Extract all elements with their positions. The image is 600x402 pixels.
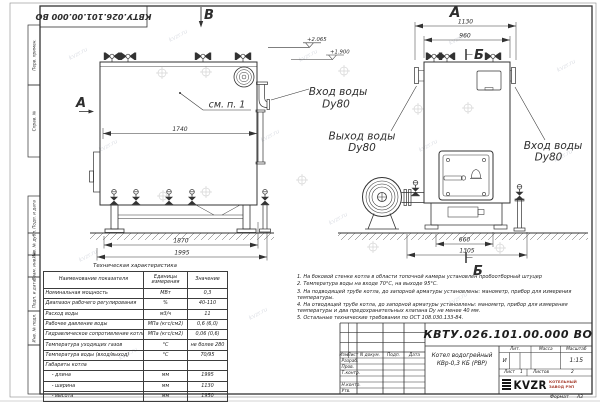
dim-1305: 1305: [459, 248, 474, 255]
row-units: [144, 361, 188, 371]
col-list: Лист: [347, 353, 358, 358]
tech-table: Наименование показателя Единицы измерени…: [43, 271, 228, 402]
front-view: [90, 62, 275, 240]
view-label-B: В: [204, 8, 214, 23]
doc-name-line1: Котел водогрейный: [432, 353, 493, 359]
row-value: 1950: [188, 391, 228, 401]
sheet-label: Лист: [504, 370, 515, 375]
doc-name-line2: КВр-0,3 КБ (РВР): [437, 361, 487, 367]
row-name: Расход воды: [44, 309, 144, 319]
sheets-num: 2: [571, 370, 574, 375]
sheet-num: 1: [520, 370, 523, 375]
watermark-text: kvzr.ru: [248, 306, 269, 322]
margin-label: Перв. примен.: [32, 39, 37, 70]
table-row: Температура уходящих газов°Сне более 280: [44, 340, 228, 350]
kvzr-logo-emblem: [502, 379, 511, 392]
table-row: Габариты котла: [44, 361, 228, 371]
row-value: 1995: [188, 371, 228, 381]
note-5: 5. Остальные технические требования по О…: [297, 316, 588, 322]
tech-table-title: Техническая характеристика: [43, 261, 227, 271]
margin-label: Инв. № подл.: [32, 314, 37, 343]
note-1: 1. На боковой стенке котла в области топ…: [297, 275, 588, 281]
row-name: - длина: [44, 371, 144, 381]
lit-value: И: [503, 358, 507, 364]
row-units: мм: [144, 391, 188, 401]
callout-see-item-1: см. п. 1: [209, 100, 246, 111]
row-value: 0,6 (6,0): [188, 319, 228, 329]
dim-660: 660: [459, 237, 471, 244]
row-name: Номинальная мощность: [44, 289, 144, 299]
side-view-valves: [411, 53, 523, 201]
row-name: Температура уходящих газов: [44, 340, 144, 350]
row-tkontr: Т.контр.: [342, 371, 361, 376]
furnace-door: [439, 151, 493, 200]
row-units: МПа (кгс/см2): [144, 319, 188, 329]
view-label-A-arrow: А: [75, 96, 86, 111]
row-name: Гидравлическое сопротивление котла: [44, 330, 144, 340]
row-value: 70/95: [188, 350, 228, 360]
row-utv: Утв.: [342, 389, 351, 394]
row-razrab: Разраб.: [342, 359, 359, 364]
watermark-text: kvzr.ru: [68, 46, 89, 62]
watermark-text: kvzr.ru: [168, 28, 189, 44]
lit-header: Лит.: [510, 347, 520, 352]
note-3: 3. На подводящей трубе котла, до запорно…: [297, 290, 588, 302]
table-row: Расход водым3/ч11: [44, 309, 228, 319]
row-units: %: [144, 299, 188, 309]
watermark-text: kvzr.ru: [418, 138, 439, 154]
masshtab-header: Масштаб: [566, 347, 586, 352]
side-piping: [256, 82, 270, 164]
kvzr-logo-text: KVZR: [514, 378, 548, 392]
row-name: - высота: [44, 391, 144, 401]
table-row: - высотамм1950: [44, 391, 228, 401]
row-value: 0,06 (0,6): [188, 330, 228, 340]
top-stamp: КВТУ.026.101.00.000 ВО: [35, 6, 151, 27]
dim-960: 960: [459, 33, 471, 40]
section-label-B-top: Б: [474, 48, 484, 63]
row-units: МВт: [144, 289, 188, 299]
scale-value: 1:15: [570, 357, 583, 364]
row-units: МПа (кгс/см2): [144, 330, 188, 340]
watermark-text: kvzr.ru: [328, 211, 349, 227]
watermark-text: kvzr.ru: [98, 138, 119, 154]
tech-table-header: Наименование показателя Единицы измерени…: [44, 272, 228, 289]
row-units: °С: [144, 340, 188, 350]
table-row: Температура воды (вход/выход)°С70/95: [44, 350, 228, 360]
row-value: 1130: [188, 381, 228, 391]
table-row: Номинальная мощностьМВт0,3: [44, 289, 228, 299]
table-row: - длинамм1995: [44, 371, 228, 381]
support-frame: [105, 205, 256, 233]
col-name-header: Наименование показателя: [44, 272, 144, 289]
row-units: °С: [144, 350, 188, 360]
row-nkontr: Н.контр.: [342, 383, 361, 388]
row-value: 0,3: [188, 289, 228, 299]
row-prov: Пров.: [342, 365, 355, 370]
inlet-water-label-2: Вход воды: [524, 140, 583, 152]
row-name: - ширина: [44, 381, 144, 391]
col-value-header: Значение: [188, 272, 228, 289]
table-row: Диапазон рабочего регулирования%40-110: [44, 299, 228, 309]
massa-header: Масса: [539, 347, 553, 352]
inlet-water-dn-1: Dy80: [322, 99, 350, 111]
table-row: Рабочее давление водыМПа (кгс/см2)0,6 (6…: [44, 319, 228, 329]
table-row: Гидравлическое сопротивление котлаМПа (к…: [44, 330, 228, 340]
row-value: 40-110: [188, 299, 228, 309]
tech-characteristics: Техническая характеристика Наименование …: [43, 261, 227, 402]
col-podp: Подп.: [387, 353, 400, 358]
margin-label: Подп. и дата: [32, 200, 37, 229]
note-2: 2. Температура воды на входе 70°С, на вы…: [297, 282, 588, 288]
technical-notes: 1. На боковой стенке котла в области топ…: [297, 275, 588, 324]
dim-1740: 1740: [172, 126, 187, 133]
outlet-water-dn: Dy80: [348, 142, 376, 154]
outlet-water-label: Выход воды: [329, 131, 396, 143]
row-name: Температура воды (вход/выход): [44, 350, 144, 360]
margin-label: Подп. и дата: [32, 279, 37, 308]
col-ndoc: N докум.: [360, 353, 380, 358]
watermark-text: kvzr.ru: [298, 48, 319, 64]
row-units: мм: [144, 381, 188, 391]
inlet-water-label-1: Вход воды: [309, 86, 368, 98]
dim-1995: 1995: [174, 250, 189, 257]
note-4: 4. На отводящей трубе котла, до запорной…: [297, 303, 588, 315]
table-row: - ширинамм1130: [44, 381, 228, 391]
row-units: мм: [144, 371, 188, 381]
col-units-header: Единицы измерения: [144, 272, 188, 289]
view-label-A: А: [449, 5, 461, 21]
row-value: 11: [188, 309, 228, 319]
top-stamp-code: КВТУ.026.101.00.000 ВО: [35, 12, 151, 22]
row-units: м3/ч: [144, 309, 188, 319]
row-value: [188, 361, 228, 371]
dim-1870: 1870: [173, 238, 188, 245]
kvzr-logo-sub2: ЗАВОД РЭП: [549, 385, 574, 390]
row-name: Диапазон рабочего регулирования: [44, 299, 144, 309]
margin-label: Взам. инв. №: [32, 251, 37, 280]
document-code: КВТУ.026.101.00.000 ВО: [423, 328, 592, 341]
elevation-value-2: +1.900: [330, 49, 350, 55]
burner-flange: [234, 67, 254, 87]
margin-label: Справ. №: [32, 110, 37, 131]
format-value: А3: [577, 395, 583, 400]
elevation-value-1: +2.065: [307, 37, 327, 43]
side-view-dimensions: [407, 22, 527, 259]
row-name: Рабочее давление воды: [44, 319, 144, 329]
col-data: Дата: [409, 353, 420, 358]
format-label: Формат: [550, 395, 569, 400]
drawing-sheet: kvzr.ru kvzr.ru kvzr.ru kvzr.ru kvzr.ru …: [0, 0, 600, 400]
watermark-text: kvzr.ru: [556, 58, 577, 74]
row-value: не более 280: [188, 340, 228, 350]
sheets-label: Листов: [533, 370, 549, 375]
inlet-water-dn-2: Dy80: [535, 152, 563, 164]
row-name: Габариты котла: [44, 361, 144, 371]
